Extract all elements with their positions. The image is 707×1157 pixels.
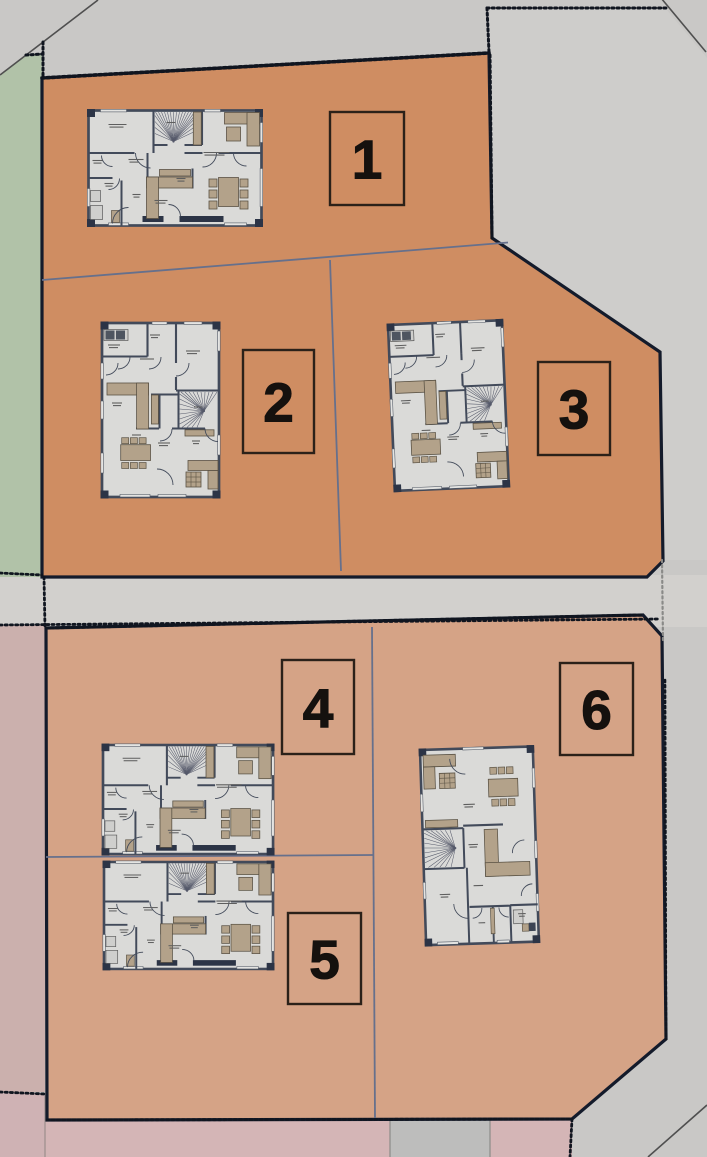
svg-text:5: 5 — [309, 929, 340, 991]
svg-text:4: 4 — [303, 677, 334, 739]
svg-text:6: 6 — [581, 679, 612, 741]
svg-text:1: 1 — [352, 129, 383, 191]
svg-text:3: 3 — [559, 379, 590, 441]
svg-text:2: 2 — [263, 372, 294, 434]
